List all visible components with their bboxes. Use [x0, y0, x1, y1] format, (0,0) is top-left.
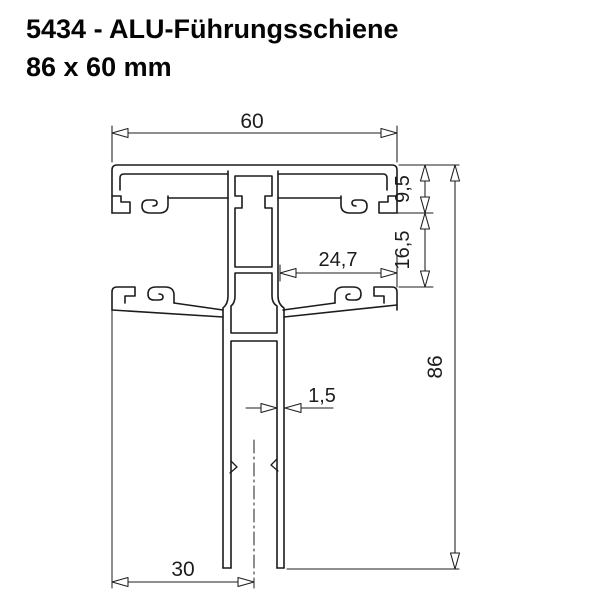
arrow-down-icon [421, 197, 430, 213]
row2-left-shelf-bottom [112, 310, 223, 317]
arrow-left-icon [280, 269, 296, 278]
row2-left-curl-hook [148, 287, 174, 303]
arrow-down-icon [421, 271, 430, 287]
row2-left-shelf-top [174, 303, 223, 310]
dim-label-total-depth: 86 [424, 355, 447, 378]
arrow-right-icon [261, 404, 277, 413]
upper-right-cavity [278, 174, 387, 190]
title-line-2: 86 x 60 mm [26, 48, 399, 86]
arrow-up-icon [421, 213, 430, 229]
upper-screw-channel-interior [235, 176, 272, 267]
row2-right-curl-hook [335, 287, 361, 303]
drawing-page: 5434 - ALU-Führungsschiene 86 x 60 mm [0, 0, 600, 605]
dimension-labels: 60 9,5 16,5 24,7 86 1,5 30 [171, 110, 447, 581]
center-column-right-wall [278, 171, 284, 568]
upper-left-cavity [120, 174, 228, 190]
profile-outline [112, 165, 397, 588]
arrow-right-icon [381, 129, 397, 138]
arrow-left-icon [112, 129, 128, 138]
dim-label-guide-center-offset: 30 [171, 558, 194, 581]
arrow-left-icon [285, 404, 301, 413]
arrow-left-icon [112, 578, 128, 587]
dim-label-wall-thickness: 1,5 [308, 385, 336, 407]
center-column-left-wall [223, 171, 228, 568]
arrow-down-icon [451, 553, 460, 569]
profile-cross-section-drawing: 60 9,5 16,5 24,7 86 1,5 30 [0, 0, 600, 605]
dim-label-first-channel-depth: 9,5 [392, 175, 414, 203]
drawing-title: 5434 - ALU-Führungsschiene 86 x 60 mm [26, 10, 399, 87]
row2-right-shelf-top [283, 303, 335, 310]
dim-label-second-channel-offset: 16,5 [392, 231, 414, 270]
row1-right-curl-hook [341, 196, 367, 213]
arrow-up-icon [451, 165, 460, 181]
row1-left-curl-hook [142, 196, 168, 213]
title-line-1: 5434 - ALU-Führungsschiene [26, 10, 399, 48]
dim-label-pocket-width: 24,7 [319, 249, 358, 271]
arrow-up-icon [421, 165, 430, 181]
row2-left-step-hook [112, 287, 135, 310]
arrow-right-icon [238, 578, 254, 587]
dim-label-top-width: 60 [240, 110, 263, 133]
lower-screw-channel-interior [231, 273, 277, 333]
row1-left-step-hook [112, 196, 130, 213]
